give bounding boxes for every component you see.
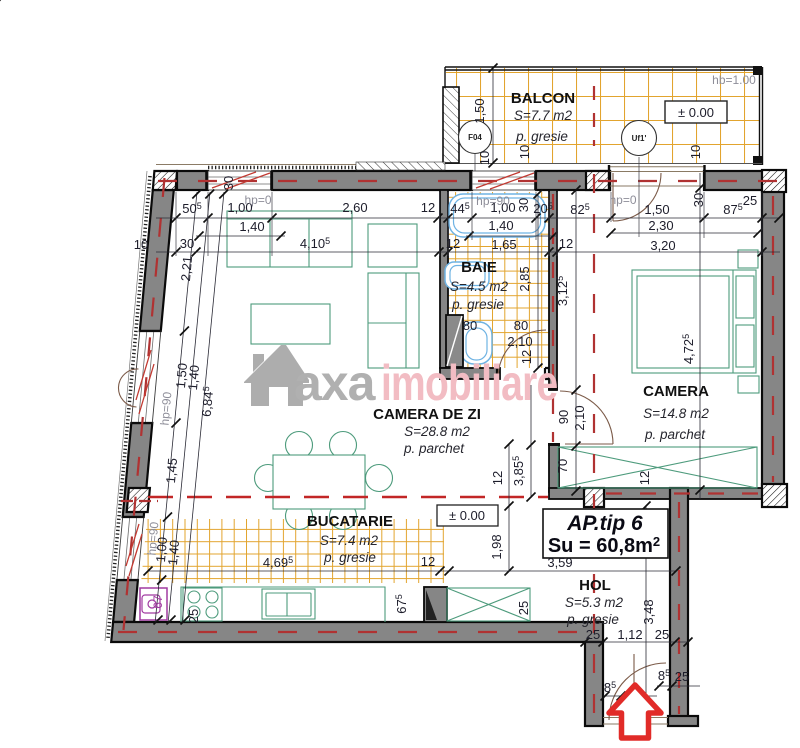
svg-text:2,21: 2,21 [178, 255, 195, 282]
svg-text:12: 12 [421, 200, 435, 215]
svg-text:p. gresie: p. gresie [451, 297, 504, 312]
svg-text:3,59: 3,59 [547, 555, 572, 570]
svg-text:p. parchet: p. parchet [644, 427, 706, 442]
svg-text:AP.tip 6: AP.tip 6 [566, 512, 643, 535]
svg-text:25: 25 [516, 601, 531, 615]
svg-text:2,85: 2,85 [517, 266, 532, 291]
svg-text:12: 12 [446, 236, 460, 251]
svg-text:S=7.4 m2: S=7.4 m2 [320, 533, 379, 548]
svg-text:3,48: 3,48 [641, 599, 656, 624]
svg-text:12: 12 [637, 471, 652, 485]
svg-text:S=4.5 m2: S=4.5 m2 [450, 279, 509, 294]
svg-text:± 0.00: ± 0.00 [678, 105, 714, 120]
svg-text:30: 30 [691, 193, 706, 207]
svg-text:p. gresie: p. gresie [515, 129, 568, 144]
svg-text:12: 12 [490, 471, 505, 485]
svg-text:30: 30 [180, 236, 194, 251]
svg-text:BAIE: BAIE [461, 259, 497, 276]
svg-text:10: 10 [517, 145, 532, 159]
svg-text:1,65: 1,65 [491, 237, 516, 252]
svg-text:p. gresie: p. gresie [566, 612, 619, 627]
svg-text:1,40: 1,40 [165, 539, 182, 566]
svg-text:hp=90: hp=90 [476, 194, 510, 208]
svg-text:1,40: 1,40 [488, 218, 513, 233]
svg-text:70: 70 [555, 459, 570, 473]
svg-text:10: 10 [134, 237, 148, 252]
svg-text:12: 12 [421, 554, 435, 569]
svg-text:1,12: 1,12 [617, 627, 642, 642]
svg-text:90: 90 [556, 410, 571, 424]
svg-text:12: 12 [559, 236, 573, 251]
svg-text:hp=90: hp=90 [158, 391, 175, 426]
svg-text:S=14.8 m2: S=14.8 m2 [643, 406, 709, 421]
svg-text:p. gresie: p. gresie [323, 550, 376, 565]
svg-text:10: 10 [477, 151, 492, 165]
svg-text:Su = 60,8m2: Su = 60,8m2 [548, 534, 660, 557]
svg-text:2,30: 2,30 [648, 218, 673, 233]
svg-text:2,60: 2,60 [342, 200, 367, 215]
svg-text:axa: axa [294, 355, 377, 411]
svg-text:80: 80 [514, 318, 528, 333]
svg-text:30: 30 [516, 198, 531, 212]
svg-text:S=28.8 m2: S=28.8 m2 [404, 424, 470, 439]
svg-text:25: 25 [586, 627, 600, 642]
svg-text:S=7.7 m2: S=7.7 m2 [514, 108, 573, 123]
svg-text:80: 80 [463, 318, 477, 333]
svg-text:25: 25 [743, 193, 757, 208]
svg-text:imobiliare: imobiliare [381, 354, 557, 411]
svg-text:2,10: 2,10 [572, 405, 587, 430]
svg-text:F04: F04 [468, 133, 482, 142]
svg-text:Uf1': Uf1' [632, 134, 647, 143]
svg-text:1,98: 1,98 [489, 534, 504, 559]
svg-text:10: 10 [688, 145, 703, 159]
svg-text:2,10: 2,10 [507, 334, 532, 349]
svg-text:1,50: 1,50 [472, 98, 487, 123]
svg-text:BALCON: BALCON [511, 90, 575, 107]
svg-text:1,45: 1,45 [163, 457, 180, 484]
svg-text:S=5.3 m2: S=5.3 m2 [565, 595, 624, 610]
svg-text:± 0.00: ± 0.00 [449, 508, 485, 523]
svg-text:hb=1.00: hb=1.00 [712, 73, 756, 87]
svg-text:CAMERA: CAMERA [643, 383, 709, 400]
svg-text:67: 67 [151, 595, 165, 609]
svg-text:BUCATARIE: BUCATARIE [307, 513, 393, 530]
svg-text:1,50: 1,50 [644, 202, 669, 217]
svg-text:30: 30 [221, 176, 236, 190]
svg-text:3,20: 3,20 [650, 238, 675, 253]
svg-text:1,40: 1,40 [185, 364, 202, 391]
svg-text:1,40: 1,40 [239, 219, 264, 234]
svg-text:hp=0: hp=0 [609, 193, 636, 207]
svg-text:HOL: HOL [579, 577, 611, 594]
svg-text:p. parchet: p. parchet [403, 441, 465, 456]
svg-text:25: 25 [655, 627, 669, 642]
svg-text:25: 25 [675, 669, 689, 684]
svg-text:hp=0: hp=0 [244, 193, 271, 207]
svg-text:25: 25 [186, 609, 201, 623]
